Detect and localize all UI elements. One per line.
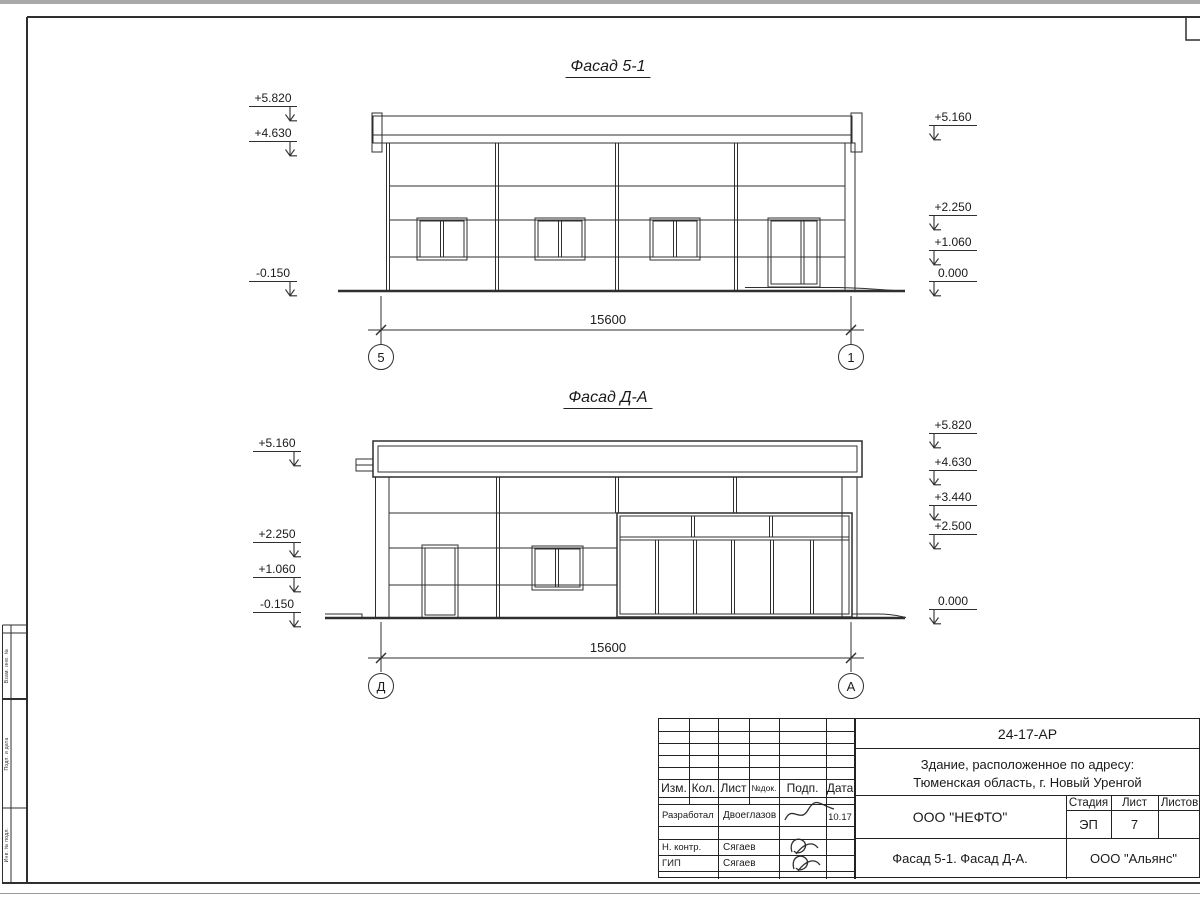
object-address-line1: Здание, расположенное по адресу: bbox=[854, 748, 1200, 772]
elevation-mark: +5.820 bbox=[249, 91, 297, 107]
sheet-value: 7 bbox=[1111, 810, 1158, 838]
elevation-mark: 0.000 bbox=[929, 594, 977, 610]
stage-label: Стадия bbox=[1066, 795, 1111, 810]
margin-cell-label: Взам. инв. № bbox=[4, 649, 10, 684]
elevation-mark: +4.630 bbox=[929, 455, 977, 471]
col-header-izm: Изм. bbox=[659, 779, 689, 797]
elevation-mark: +1.060 bbox=[929, 235, 977, 251]
viewer-top-bar bbox=[0, 0, 1200, 4]
axis-marker: А bbox=[838, 673, 864, 699]
title-block: Изм. Кол. Лист №док. Подп. Дата Разработ… bbox=[658, 718, 1200, 878]
company-name: ООО "НЕФТО" bbox=[854, 795, 1066, 838]
facade1-title: Фасад 5-1 bbox=[566, 58, 651, 78]
elevation-mark: +2.250 bbox=[929, 200, 977, 216]
elevation-mark: +2.500 bbox=[929, 519, 977, 535]
elevation-mark: +4.630 bbox=[249, 126, 297, 142]
row-name: Сягаев bbox=[720, 839, 779, 855]
col-header-ndok: №док. bbox=[749, 779, 779, 797]
sheets-value bbox=[1158, 810, 1200, 838]
sheets-label: Листов bbox=[1158, 795, 1200, 810]
doc-number: 24-17-АР bbox=[854, 719, 1200, 748]
axis-marker: Д bbox=[368, 673, 394, 699]
margin-cell-label: Подп. и дата bbox=[4, 737, 10, 770]
elevation-mark: +5.820 bbox=[929, 418, 977, 434]
row-name: Сягаев bbox=[720, 855, 779, 871]
stage-value: ЭП bbox=[1066, 810, 1111, 838]
row-name: Двоеглазов bbox=[720, 804, 779, 826]
axis-marker: 1 bbox=[838, 344, 864, 370]
facade2-dimension: 15600 bbox=[590, 640, 626, 655]
sheet-label: Лист bbox=[1111, 795, 1158, 810]
facade2-title: Фасад Д-А bbox=[563, 389, 652, 409]
org-name: ООО "Альянс" bbox=[1066, 838, 1200, 879]
elevation-mark: +5.160 bbox=[929, 110, 977, 126]
elevation-mark: -0.150 bbox=[249, 266, 297, 282]
sheet-title: Фасад 5-1. Фасад Д-А. bbox=[854, 838, 1066, 879]
elevation-mark: -0.150 bbox=[253, 597, 301, 613]
axis-marker: 5 bbox=[368, 344, 394, 370]
row-date: 10.17 bbox=[826, 809, 854, 826]
drawing-sheet: Фасад 5-1 +5.820 +4.630 -0.150 +5.160 +2… bbox=[0, 0, 1200, 900]
elevation-mark: +5.160 bbox=[253, 436, 301, 452]
row-role: Разработал bbox=[659, 804, 718, 826]
margin-cell-label: Инв. № подл. bbox=[4, 828, 10, 863]
row-role: Н. контр. bbox=[659, 839, 718, 855]
object-address-line2: Тюменская область, г. Новый Уренгой bbox=[854, 772, 1200, 792]
row-role: ГИП bbox=[659, 855, 718, 871]
elevation-mark: +3.440 bbox=[929, 490, 977, 506]
col-header-list: Лист bbox=[718, 779, 749, 797]
facade1-dimension: 15600 bbox=[590, 312, 626, 327]
elevation-mark: 0.000 bbox=[929, 266, 977, 282]
elevation-mark: +1.060 bbox=[253, 562, 301, 578]
elevation-mark: +2.250 bbox=[253, 527, 301, 543]
col-header-kol: Кол. bbox=[689, 779, 718, 797]
col-header-podp: Подп. bbox=[779, 779, 826, 797]
col-header-data: Дата bbox=[826, 779, 854, 797]
